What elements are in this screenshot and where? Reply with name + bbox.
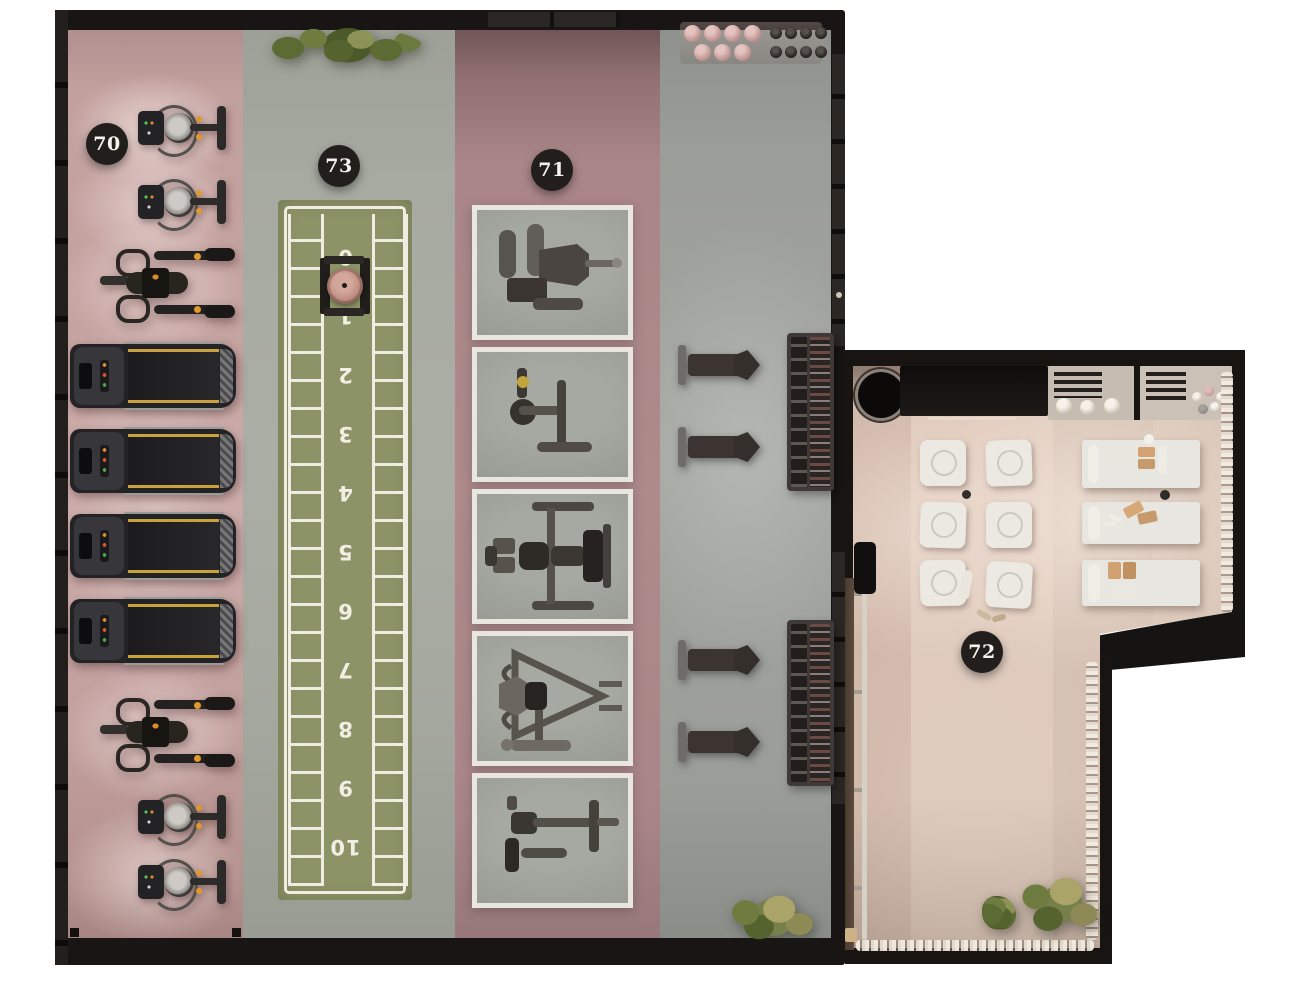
treadmill-screen [79,618,92,644]
bolster-icon [1088,445,1099,483]
track-number-7: 7 [278,658,412,682]
treadmill-rail [124,597,224,599]
treadmill-icon [70,340,236,412]
right-wall-lockers-upper [832,54,845,346]
bike-frame [190,124,220,131]
zone-marker-72-label: 72 [968,641,995,663]
medicine-ball-icon [734,44,751,61]
treadmill-screen [79,448,92,474]
elliptical-joint [194,253,201,260]
elliptical-handle [116,295,150,323]
exercise-mat-icon [986,502,1032,548]
medicine-ball-icon [724,25,741,42]
shelf-bars [1146,372,1186,402]
planter-pot-icon [858,372,904,418]
treadmill-buttons [100,615,109,647]
weight-sled-bar [324,256,364,264]
track-number-9: 9 [278,776,412,800]
soft-ball-icon [1056,398,1072,414]
treadmill-rail [124,578,224,580]
dumbbell-shelf [1048,366,1134,420]
soft-ball-icon [1080,400,1095,415]
medicine-ball-icon [704,25,721,42]
bike-frame [190,878,220,885]
kettlebell-icon [785,27,797,39]
planter-box-plant [266,26,424,66]
treadmill-icon [70,425,236,497]
treadmill-screen [79,363,92,389]
kettlebell-icon [770,46,782,58]
storage-counter [900,366,1048,416]
bike-console [138,800,164,834]
curtain-decor [1221,372,1233,612]
treadmill-roller [220,349,233,403]
bench-head [734,432,760,462]
bike-console [138,111,164,145]
bike-console [138,865,164,899]
wall-wood-strip [845,578,854,950]
kettlebell-icon [785,46,797,58]
gym-floor-plan: 0 1 2 3 4 5 6 7 8 9 10 [0,0,1303,981]
treadmill-belt [128,604,219,658]
elliptical-front-rail [100,725,128,734]
rug-corner-marker [232,928,241,937]
bolster-icon [1088,506,1100,540]
shelf-bars [1054,372,1102,398]
bench-head [734,727,760,757]
bike-stabilizer [217,860,226,904]
bike-knob [196,134,202,140]
bike-stabilizer [217,106,226,150]
bolster-icon [1088,564,1100,602]
small-ball-icon [1210,402,1220,412]
treadmill-rail [124,512,224,514]
treadmill-rail [124,408,224,410]
medicine-ball-icon [684,25,701,42]
medicine-ball-icon [744,25,761,42]
bike-knob [196,190,202,196]
stool-icon [854,542,876,594]
yoga-block-icon [1138,447,1155,457]
counter-edge-light [928,417,1016,420]
treadmill-roller [220,434,233,488]
kettlebell-icon [800,27,812,39]
cushion-icon [1108,582,1136,600]
exercise-bike-icon [138,104,232,152]
machine-platform-5 [472,773,633,908]
elliptical-joint [194,702,201,709]
elliptical-pedal [204,697,235,710]
bench-head [734,645,760,675]
treadmill-roller [220,604,233,658]
track-number-3: 3 [278,422,412,446]
treadmill-roller [220,519,233,573]
zone-marker-73[interactable]: 73 [318,145,360,187]
ball-row [694,44,751,61]
track-number-6: 6 [278,599,412,623]
small-ball-icon [1144,434,1154,444]
seated-row-machine-icon [477,778,628,903]
accessory-shelf [1140,366,1232,420]
machine-platform-3 [472,489,633,624]
bike-knob [196,870,202,876]
flat-bench-icon [676,722,762,762]
track-number-5: 5 [278,540,412,564]
track-number-8: 8 [278,717,412,741]
bench-pad [688,649,740,671]
elliptical-pedal [204,248,235,261]
exercise-mat-icon [919,501,967,549]
bike-console [138,185,164,219]
treadmill-buttons [100,445,109,477]
elliptical-handle [116,744,150,772]
elliptical-console [142,717,169,747]
elliptical-trainer-icon [98,243,236,323]
door-handle-icon [836,292,842,298]
ball-row [684,25,761,42]
treadmill-rail [124,427,224,429]
treadmill-buttons [100,530,109,562]
bench-pad [688,731,740,753]
stretch-frame-icon [1170,447,1194,471]
kettlebell-icon [815,46,827,58]
track-number-4: 4 [278,481,412,505]
flat-bench-icon [676,345,762,385]
elliptical-joint [194,306,201,313]
medicine-ball-rack [680,22,822,64]
yoga-block-icon [1138,459,1155,469]
treadmill-rail [124,493,224,495]
small-ball-icon [1198,404,1208,414]
track-number-10: 10 [278,835,412,859]
elliptical-joint [194,755,201,762]
zone-marker-73-label: 73 [325,155,352,177]
bench-pad [688,354,740,376]
yoga-block-icon [1108,562,1121,579]
elliptical-pedal [204,754,235,767]
exercise-mat-icon [985,561,1033,609]
dual-stack-press-machine-icon [477,494,628,619]
storage-box-icon [845,928,857,942]
treadmill-rail [124,342,224,344]
seated-arm-machine-icon [477,352,628,477]
elliptical-console [142,268,169,298]
bike-stabilizer [217,795,226,839]
zone-marker-72[interactable]: 72 [961,631,1003,673]
exercise-bike-icon [138,793,232,841]
flat-bench-icon [676,640,762,680]
sled-track: 0 1 2 3 4 5 6 7 8 9 10 [278,200,412,900]
zone-marker-70[interactable]: 70 [86,123,128,165]
medicine-ball-icon [694,44,711,61]
treadmill-buttons [100,360,109,392]
exercise-bike-icon [138,178,232,226]
rug-corner-marker [70,928,79,937]
small-plant [982,896,1016,930]
machine-platform-4 [472,631,633,766]
bike-knob [196,823,202,829]
dumbbell-rack-icon [787,333,834,491]
bike-stabilizer [217,180,226,224]
yoga-block-icon [1123,562,1136,579]
bike-knob [196,116,202,122]
bike-knob [196,888,202,894]
pilates-ring-icon [1108,448,1134,474]
zone-marker-70-label: 70 [93,133,120,155]
small-weight-ball-icon [962,490,971,499]
machine-platform-2 [472,347,633,482]
kettlebell-icon [815,27,827,39]
small-ball-icon [1192,392,1202,402]
bike-frame [190,813,220,820]
zone-marker-71-label: 71 [538,159,565,181]
flat-bench-icon [676,427,762,467]
bike-frame [190,198,220,205]
treadmill-screen [79,533,92,559]
weight-sled-bar [324,308,364,316]
weight-plate-hub [342,283,347,288]
kettlebell-icon [800,46,812,58]
chest-press-machine-icon [477,210,628,335]
wall-barre-rail [862,586,867,940]
elliptical-trainer-icon [98,692,236,772]
kettlebell-row [770,46,827,58]
treadmill-icon [70,595,236,667]
exercise-mat-icon [985,439,1033,487]
kettlebell-row [770,27,827,39]
top-wall-door [488,12,620,27]
treadmill-belt [128,434,219,488]
medicine-ball-icon [714,44,731,61]
small-weight-ball-icon [1160,490,1170,500]
exercise-mat-icon [920,440,966,486]
treadmill-icon [70,510,236,582]
bench-pad [688,436,740,458]
treadmill-belt [128,349,219,403]
bike-knob [196,208,202,214]
exercise-bike-icon [138,858,232,906]
treadmill-belt [128,519,219,573]
bike-knob [196,805,202,811]
kettlebell-icon [770,27,782,39]
track-number-2: 2 [278,363,412,387]
exercise-mat-icon [920,560,967,607]
dumbbell-rack-icon [787,620,834,786]
machine-platform-1 [472,205,633,340]
small-ball-icon [1204,386,1214,396]
treadmill-rail [124,663,224,665]
bench-head [734,350,760,380]
incline-lever-machine-icon [477,636,628,761]
left-wall-panels [55,10,68,965]
soft-ball-icon [1104,398,1120,414]
elliptical-front-rail [100,276,128,285]
bolster-icon [1158,446,1167,474]
elliptical-pedal [204,305,235,318]
zone-marker-71[interactable]: 71 [531,149,573,191]
